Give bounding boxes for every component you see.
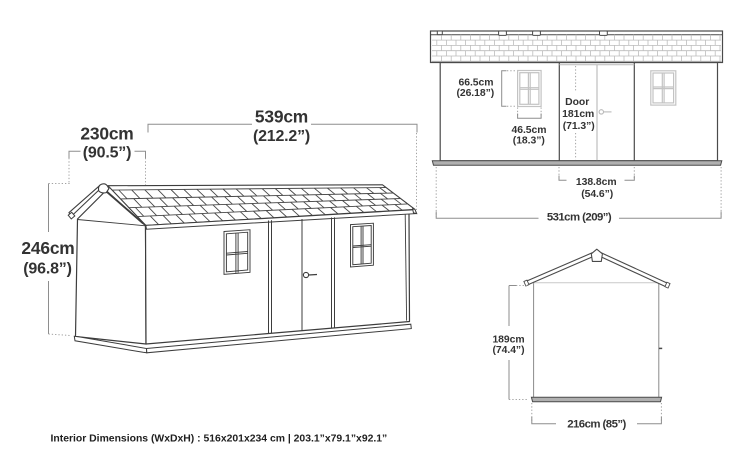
svg-text:539cm: 539cm: [255, 107, 308, 127]
svg-text:230cm: 230cm: [80, 124, 133, 144]
svg-text:181cm: 181cm: [562, 109, 594, 120]
svg-text:(74.4”): (74.4”): [493, 345, 525, 356]
svg-text:Door: Door: [565, 97, 589, 108]
svg-text:246cm: 246cm: [21, 238, 74, 258]
svg-text:(54.6”): (54.6”): [581, 189, 613, 200]
svg-text:(90.5”): (90.5”): [83, 145, 131, 162]
svg-text:(212.2”): (212.2”): [253, 128, 310, 145]
svg-text:66.5cm: 66.5cm: [459, 77, 494, 88]
svg-text:531cm (209”): 531cm (209”): [547, 212, 612, 224]
svg-text:(71.3”): (71.3”): [563, 121, 595, 132]
svg-text:138.8cm: 138.8cm: [576, 177, 617, 188]
svg-text:(18.3”): (18.3”): [513, 136, 545, 147]
svg-text:(96.8”): (96.8”): [23, 261, 71, 278]
svg-text:216cm (85”): 216cm (85”): [567, 419, 626, 431]
svg-text:189cm: 189cm: [492, 334, 524, 345]
svg-text:(26.18”): (26.18”): [456, 88, 494, 99]
svg-text:Interior Dimensions (WxDxH) :: Interior Dimensions (WxDxH) : 516x201x23…: [51, 433, 388, 444]
svg-text:46.5cm: 46.5cm: [512, 125, 547, 136]
